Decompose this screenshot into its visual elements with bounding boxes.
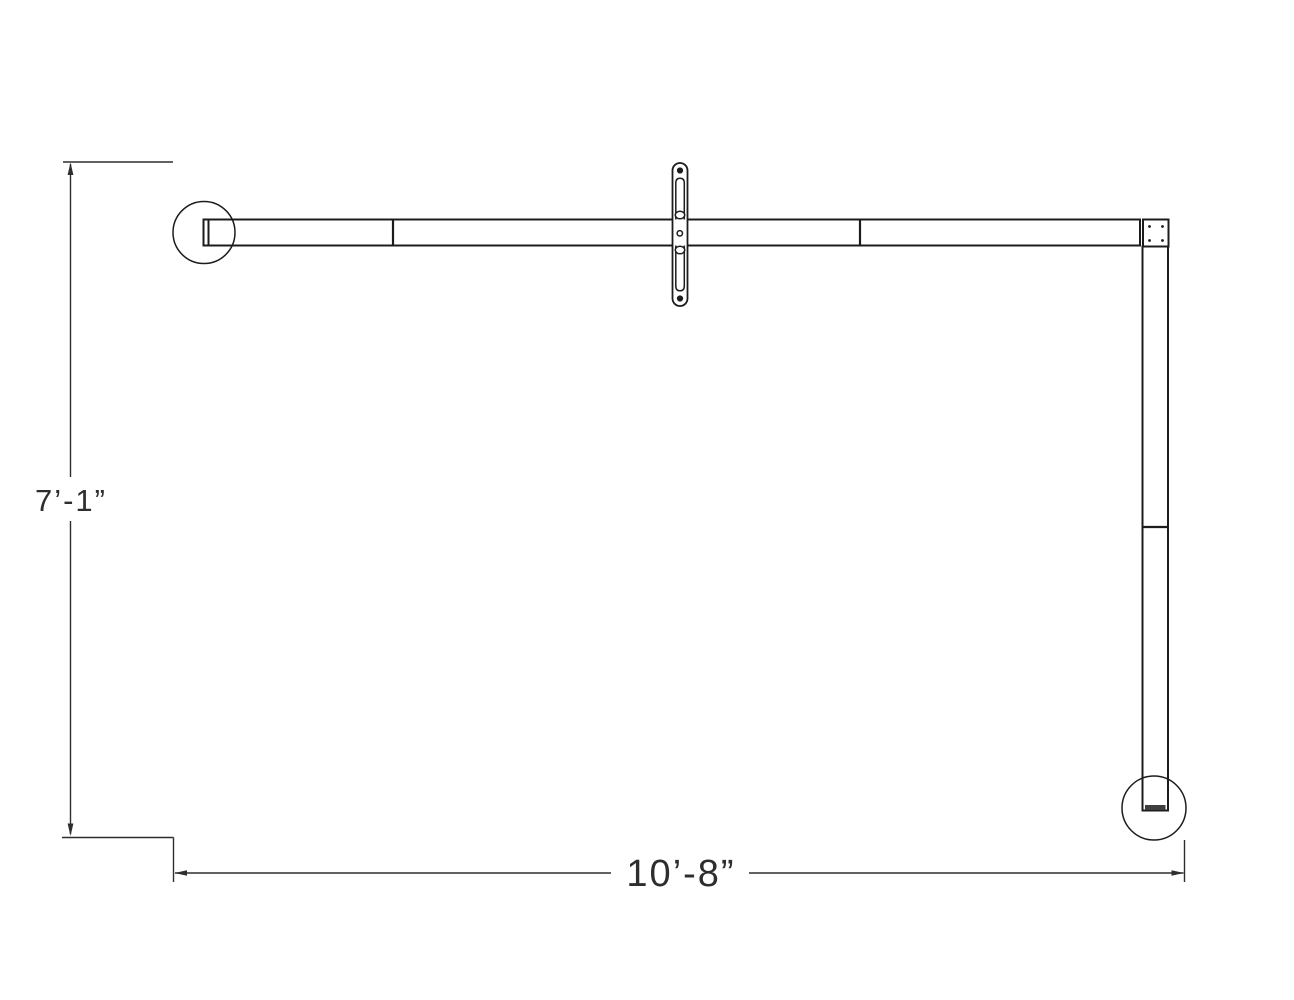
height-dimension-label: 7’-1” — [35, 483, 107, 518]
bracket-bolt-hole-top — [677, 167, 683, 173]
bracket-bolt-hole-bottom — [677, 295, 683, 301]
height-dimension-group: 7’-1” — [35, 162, 174, 838]
beam-left-end-cap — [204, 220, 209, 246]
width-dimension-group: 10’-8” — [174, 838, 1185, 896]
post-bottom-end-cap — [1145, 805, 1166, 810]
bracket-rod-end-bottom — [675, 246, 684, 254]
bracket-rod-end-top — [675, 211, 684, 219]
corner-plate-bolt-hole-1 — [1148, 225, 1151, 228]
width-dimension-label: 10’-8” — [626, 853, 735, 895]
corner-plate-bolt-hole-3 — [1148, 239, 1151, 242]
height-arrow-down — [68, 824, 74, 837]
technical-drawing: 7’-1” 10’-8” — [0, 0, 1294, 1000]
corner-plate-group — [1143, 220, 1169, 247]
bracket-center-hole — [677, 231, 682, 236]
center-mounting-bracket — [673, 163, 688, 306]
width-arrow-right — [1172, 870, 1185, 876]
corner-plate-bolt-hole-2 — [1161, 225, 1164, 228]
right-post — [1143, 247, 1169, 811]
corner-plate-bolt-hole-4 — [1161, 239, 1164, 242]
vertical-post-group — [1143, 247, 1169, 811]
drawing-canvas: 7’-1” 10’-8” — [0, 0, 1294, 1000]
corner-plate — [1143, 220, 1169, 247]
width-arrow-left — [175, 870, 188, 876]
height-arrow-up — [68, 163, 74, 176]
